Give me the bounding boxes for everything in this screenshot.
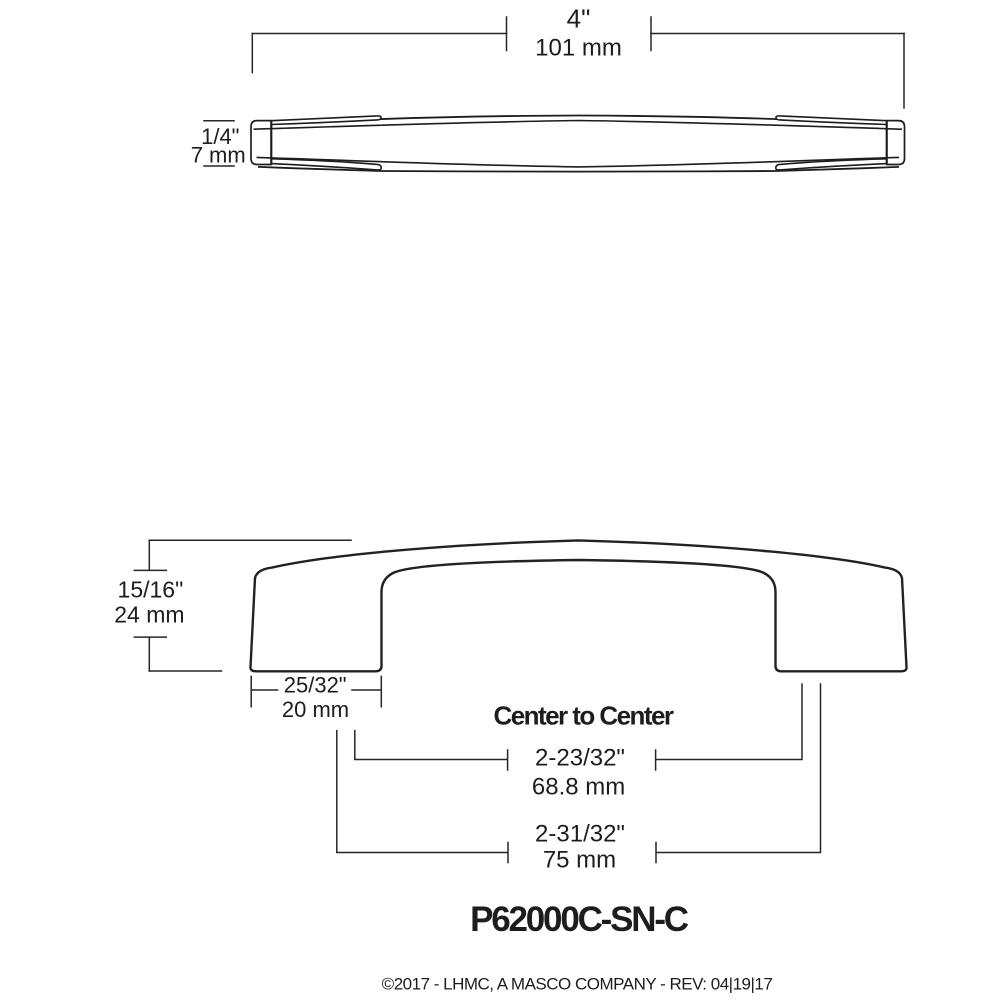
svg-text:7 mm: 7 mm <box>191 143 246 168</box>
svg-text:101 mm: 101 mm <box>535 35 622 62</box>
svg-text:68.8 mm: 68.8 mm <box>532 774 625 801</box>
svg-text:2-23/32": 2-23/32" <box>535 745 625 772</box>
svg-text:75 mm: 75 mm <box>543 847 616 874</box>
svg-text:4": 4" <box>567 4 591 34</box>
svg-text:25/32": 25/32" <box>284 673 347 698</box>
svg-text:24 mm: 24 mm <box>114 602 184 628</box>
svg-text:©2017 - LHMC, A MASCO COMPANY: ©2017 - LHMC, A MASCO COMPANY - REV: 04|… <box>382 975 773 994</box>
svg-text:15/16": 15/16" <box>118 577 184 603</box>
svg-text:20 mm: 20 mm <box>282 697 349 722</box>
svg-text:Center to Center: Center to Center <box>494 701 674 731</box>
svg-text:P62000C-SN-C: P62000C-SN-C <box>470 900 689 939</box>
svg-text:2-31/32": 2-31/32" <box>535 821 625 848</box>
